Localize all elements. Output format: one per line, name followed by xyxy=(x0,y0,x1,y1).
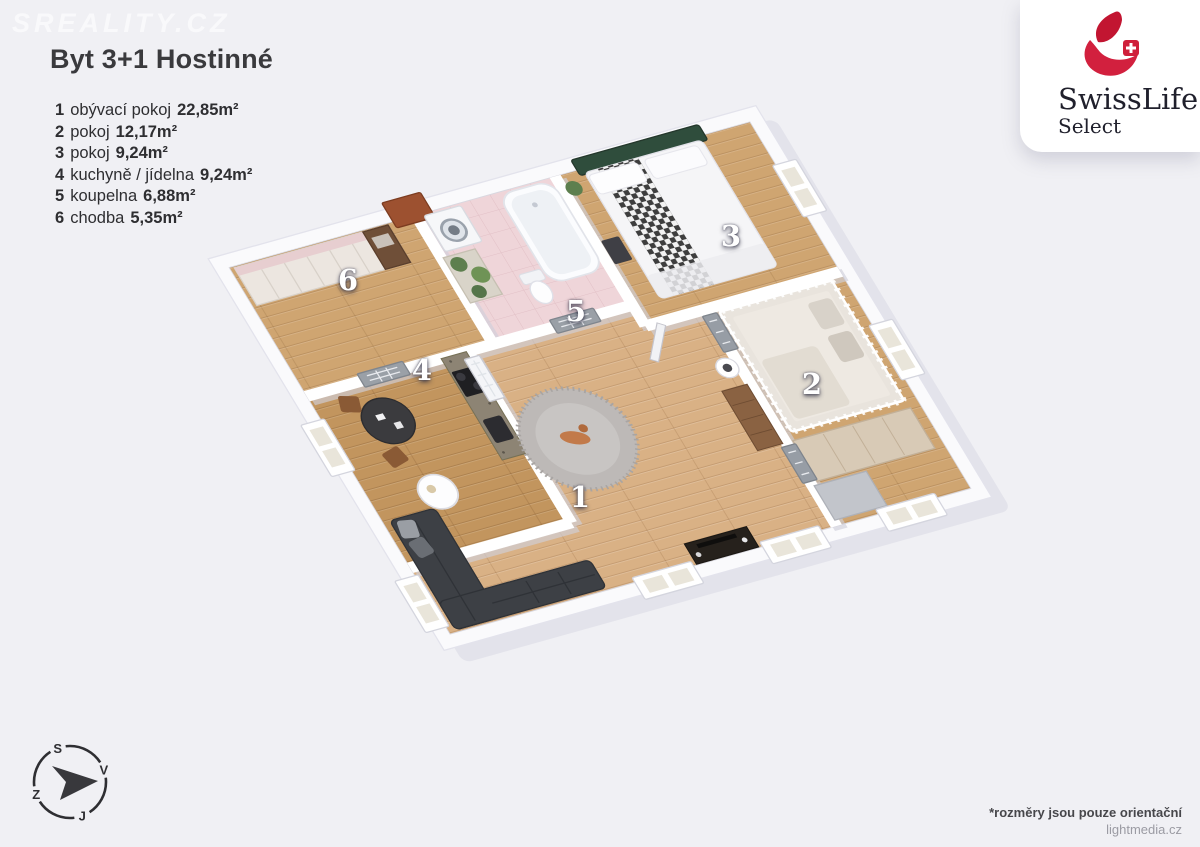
compass-arrow xyxy=(52,766,98,800)
compass-icon: S V J Z xyxy=(18,736,128,836)
swisslife-logo-card: SwissLife Select xyxy=(1020,0,1200,152)
compass-letter-east: V xyxy=(99,762,108,777)
compass-letter-west: Z xyxy=(32,787,40,802)
compass-letter-south: J xyxy=(79,808,86,823)
brand-wordmark: SwissLife xyxy=(1058,82,1198,116)
compass-letter-north: S xyxy=(53,741,62,756)
room-label-2: 2 xyxy=(802,367,822,401)
room-label-5: 5 xyxy=(566,294,586,328)
room-label-3: 3 xyxy=(721,219,741,253)
room-label-1: 1 xyxy=(570,480,590,514)
footer-credit: lightmedia.cz xyxy=(989,822,1182,837)
room-label-6: 6 xyxy=(338,263,358,297)
footer: *rozměry jsou pouze orientační lightmedi… xyxy=(989,805,1182,837)
room-label-4: 4 xyxy=(412,353,432,387)
footer-disclaimer: *rozměry jsou pouze orientační xyxy=(989,805,1182,820)
brand-sub-wordmark: Select xyxy=(1058,114,1121,138)
floorplan-page: SREALITY.CZ Byt 3+1 Hostinné 1obývací po… xyxy=(0,0,1200,847)
